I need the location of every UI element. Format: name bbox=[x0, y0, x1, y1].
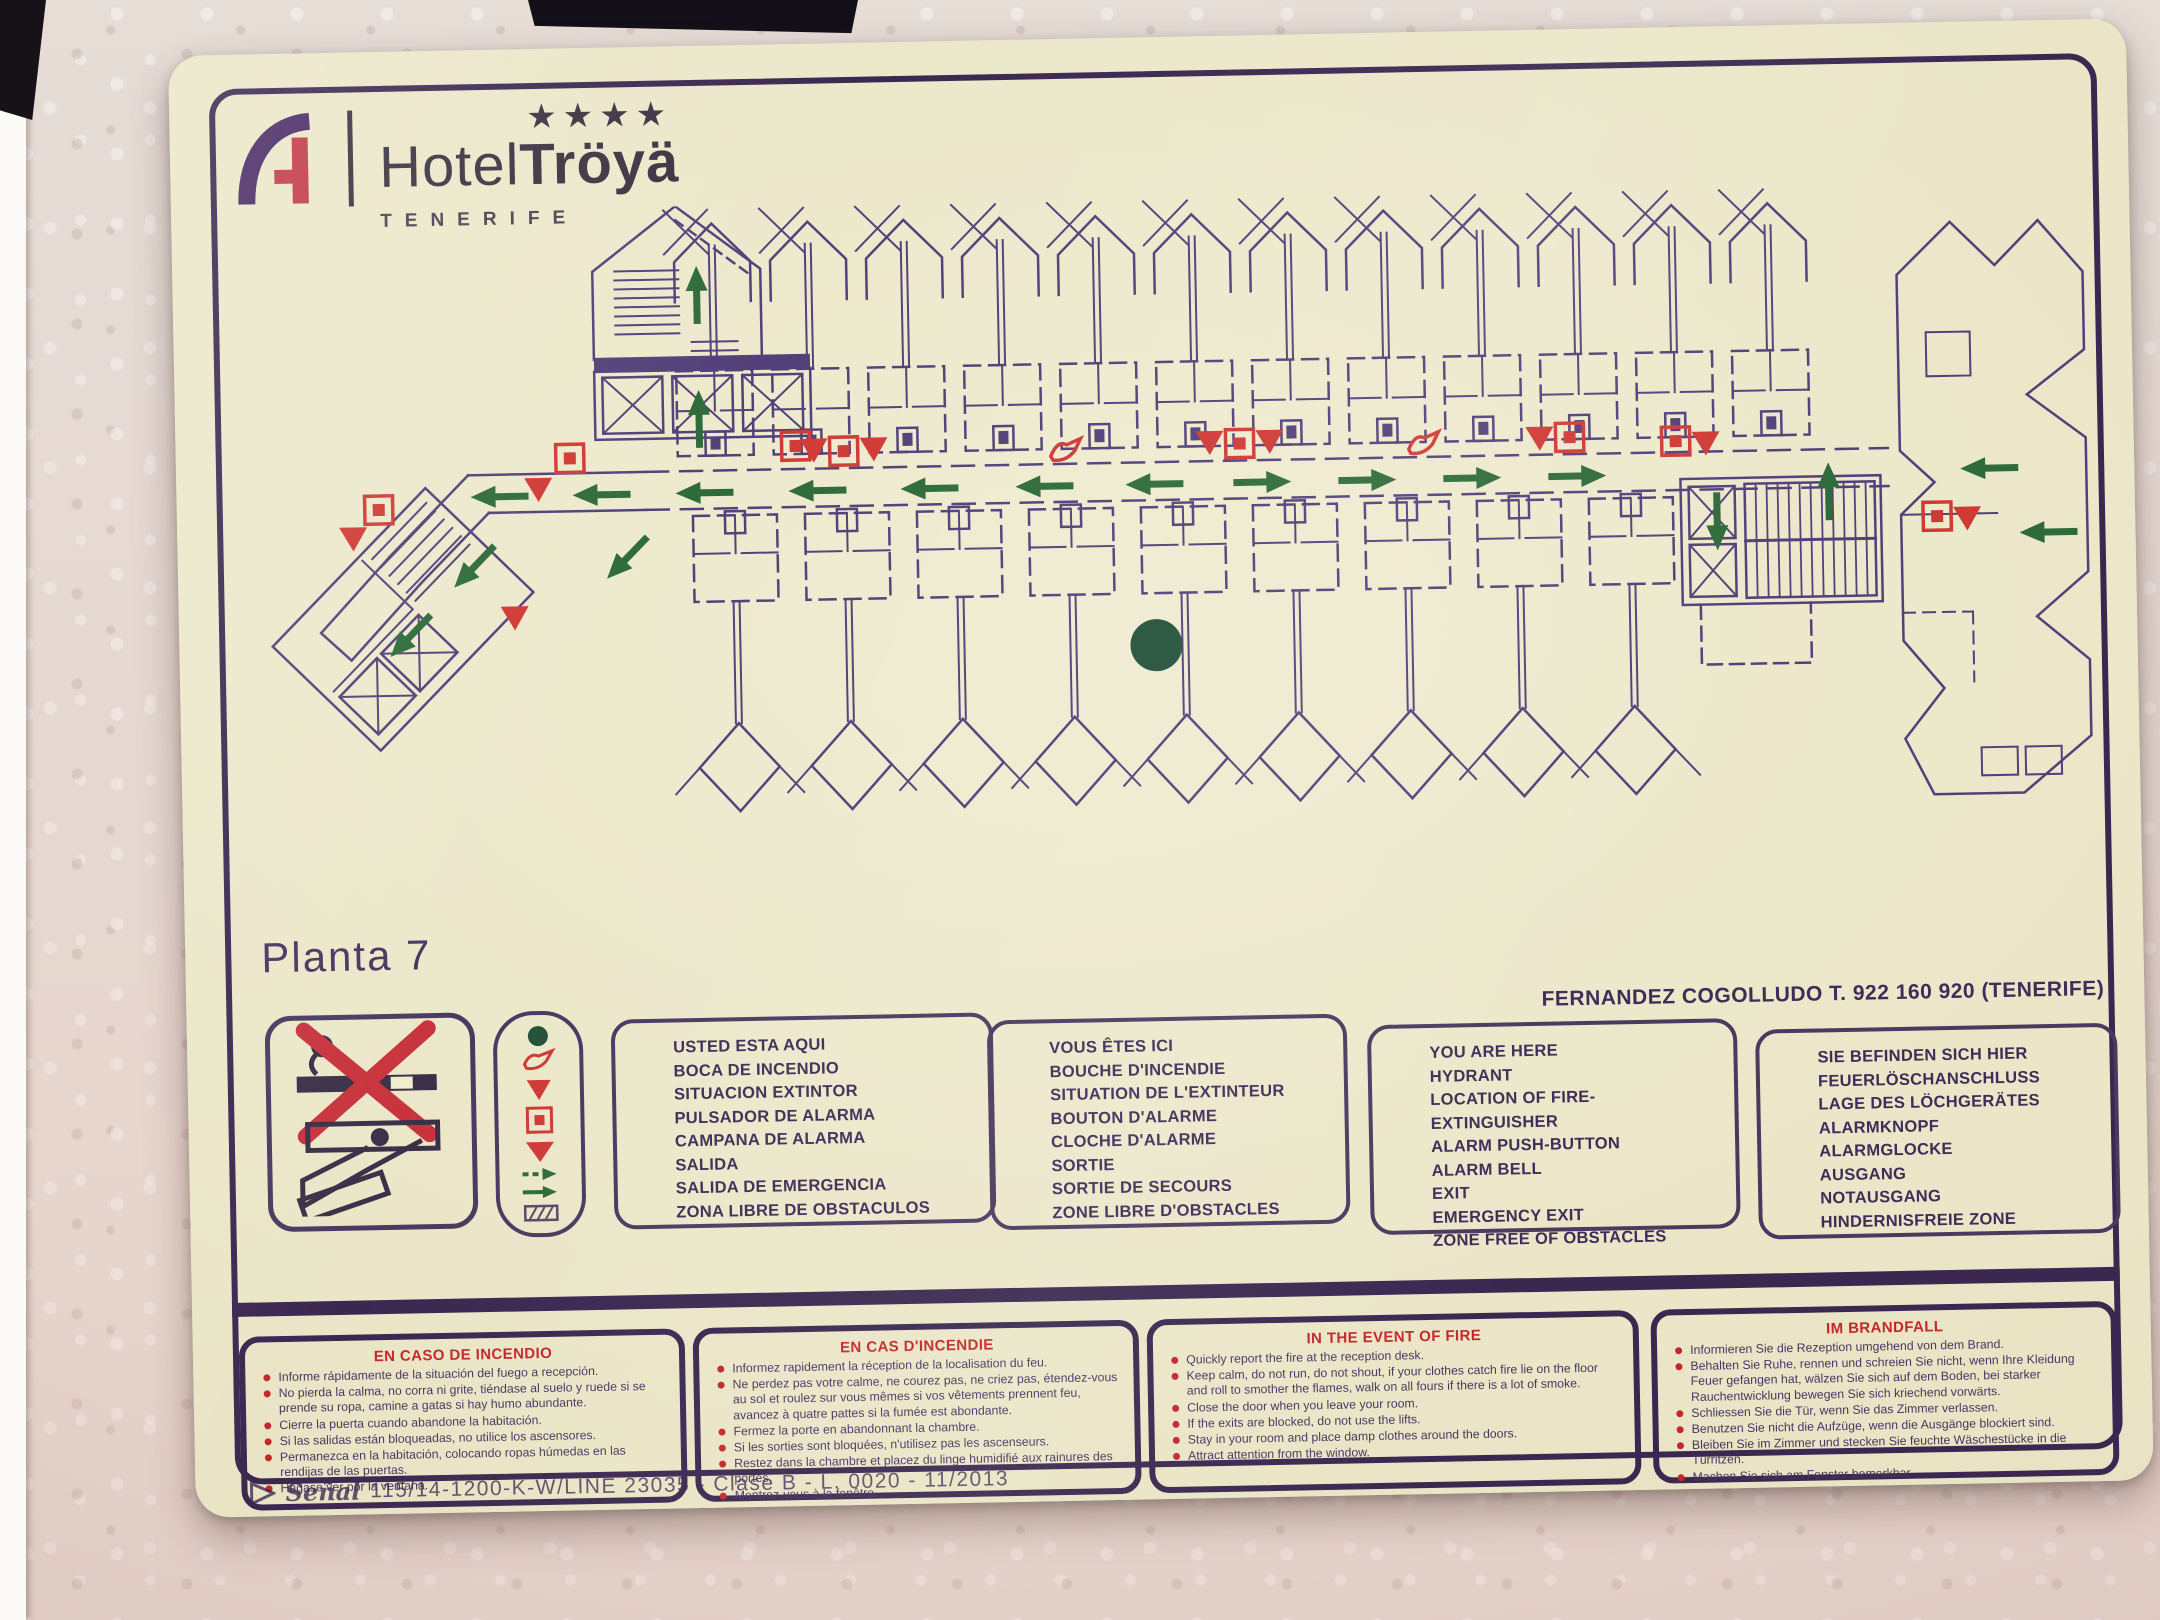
floor-plan bbox=[223, 179, 2106, 927]
emergency-exit-arrow-icon bbox=[523, 1186, 557, 1199]
legend-german: SIE BEFINDEN SICH HIERFEUERLÖSCHANSCHLUS… bbox=[1755, 1023, 2121, 1240]
legend-line: HINDERNISFREIE ZONE bbox=[1820, 1206, 2100, 1235]
right-wing bbox=[1896, 219, 2093, 794]
instruction-item: Behalten Sie Ruhe, rennen und schreien S… bbox=[1673, 1351, 2098, 1405]
alarm-button-icon bbox=[556, 444, 585, 473]
exit-route-arrow-icon bbox=[522, 1168, 556, 1181]
legend-symbols bbox=[492, 1010, 586, 1238]
legend-line: ZONE LIBRE D'OBSTACLES bbox=[1052, 1196, 1330, 1225]
top-room-row bbox=[663, 189, 1810, 457]
left-wing bbox=[273, 488, 534, 751]
legend-english: YOU ARE HEREHYDRANTLOCATION OF FIRE-EXTI… bbox=[1367, 1018, 1741, 1235]
logo-divider bbox=[347, 110, 354, 206]
evacuation-sign: ★★★★ HotelTröyä TENERIFE bbox=[168, 18, 2154, 1517]
instructions-english: IN THE EVENT OF FIRE Quickly report the … bbox=[1146, 1310, 1641, 1493]
corner-object bbox=[0, 0, 46, 120]
instruction-item: Ne perdez pas votre calme, ne courez pas… bbox=[715, 1370, 1120, 1423]
maker-script: Señal bbox=[285, 1477, 360, 1507]
you-are-here-dot bbox=[1130, 619, 1183, 672]
brand-name: Tröyä bbox=[519, 129, 680, 197]
legend-line: ZONA LIBRE DE OBSTACULOS bbox=[676, 1195, 976, 1224]
obstacle-free-zone-icon bbox=[525, 1206, 557, 1221]
hydrant-icon bbox=[524, 1051, 552, 1069]
floor-label: Planta 7 bbox=[261, 931, 432, 982]
fire-extinguisher-icon bbox=[527, 1080, 551, 1100]
hotel-logo-mark-icon bbox=[235, 107, 325, 213]
legend-spanish: USTED ESTA AQUIBOCA DE INCENDIOSITUACION… bbox=[611, 1012, 997, 1229]
instructions-german: IM BRANDFALL Informieren Sie die Rezepti… bbox=[1650, 1301, 2119, 1484]
alarm-bell-icon bbox=[526, 1142, 554, 1163]
brand-prefix: Hotel bbox=[379, 132, 521, 200]
legend-french: VOUS ÊTES ICIBOUCHE D'INCENDIESITUATION … bbox=[987, 1014, 1351, 1231]
legend-line: LOCATION OF FIRE-EXTINGUISHER bbox=[1430, 1083, 1719, 1136]
no-smoking-in-bed-pictogram bbox=[264, 1012, 478, 1232]
door-frame-edge bbox=[0, 0, 26, 1620]
right-stair-block bbox=[1680, 475, 1884, 665]
maker-triangle-icon bbox=[249, 1481, 275, 1505]
four-stars: ★★★★ bbox=[526, 94, 673, 137]
ceiling-object bbox=[528, 0, 858, 36]
you-are-here-dot-icon bbox=[528, 1026, 548, 1046]
bottom-room-row bbox=[671, 493, 1701, 813]
